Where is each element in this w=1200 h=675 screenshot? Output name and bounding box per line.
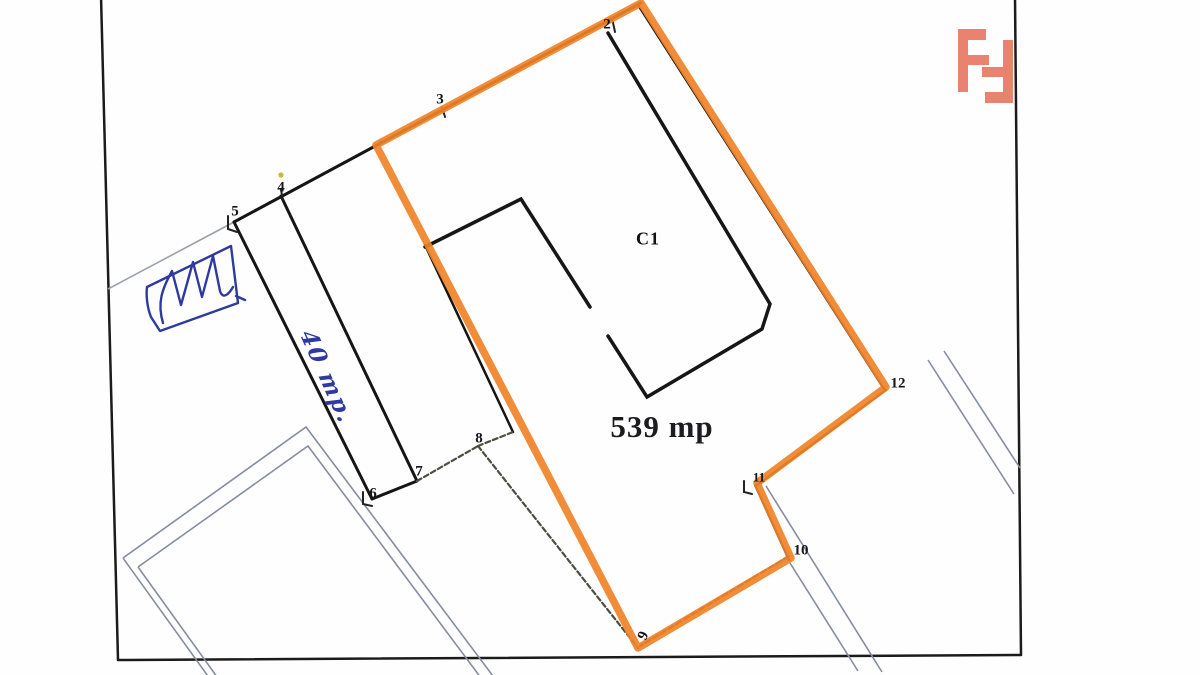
vertex-label-4: 4 <box>277 181 285 196</box>
ff-logo <box>955 26 1025 116</box>
boundary-8-9 <box>478 446 638 648</box>
tick-vertex-11 <box>744 481 752 494</box>
boundary-6-7 <box>372 481 417 499</box>
survey-dot-yellow <box>278 172 283 177</box>
frame-bottom-edge <box>118 655 1021 660</box>
boundary-5-6 <box>234 222 372 499</box>
street-line-faint <box>108 222 234 289</box>
boundary-8-corner <box>478 432 513 446</box>
vertex-label-6: 6 <box>369 487 377 502</box>
vertex-label-10: 10 <box>794 544 809 559</box>
vertex-label-5: 5 <box>231 205 239 220</box>
highlighted-parcel-boundary <box>376 3 886 648</box>
boundary-lines-dashed <box>417 432 789 648</box>
boundary-7-8 <box>417 446 478 481</box>
vertex-label-2: 2 <box>603 18 611 33</box>
vertex-label-3: 3 <box>436 93 444 108</box>
logo-letter-f-flipped <box>982 40 1013 103</box>
vertex-label-12: 12 <box>891 377 906 392</box>
cadastral-plan-page: 2 3 4 5 6 7 8 9 10 11 12 C1 539 mp 40 mp… <box>0 0 1200 675</box>
logo-letter-f <box>958 29 989 92</box>
building-label: C1 <box>636 229 660 250</box>
blue-pen-scribble <box>147 246 245 331</box>
vertex-label-11: 11 <box>753 471 765 484</box>
parcel-area-label: 539 mp <box>610 409 713 445</box>
boundary-west-inner <box>425 245 513 432</box>
vertex-label-7: 7 <box>415 465 423 480</box>
neighbor-parcel-southeast <box>766 351 1020 672</box>
vertex-label-8: 8 <box>475 432 483 447</box>
frame-left-edge <box>101 0 118 660</box>
page-frame <box>101 0 1021 660</box>
boundary-lines-black <box>234 3 641 499</box>
